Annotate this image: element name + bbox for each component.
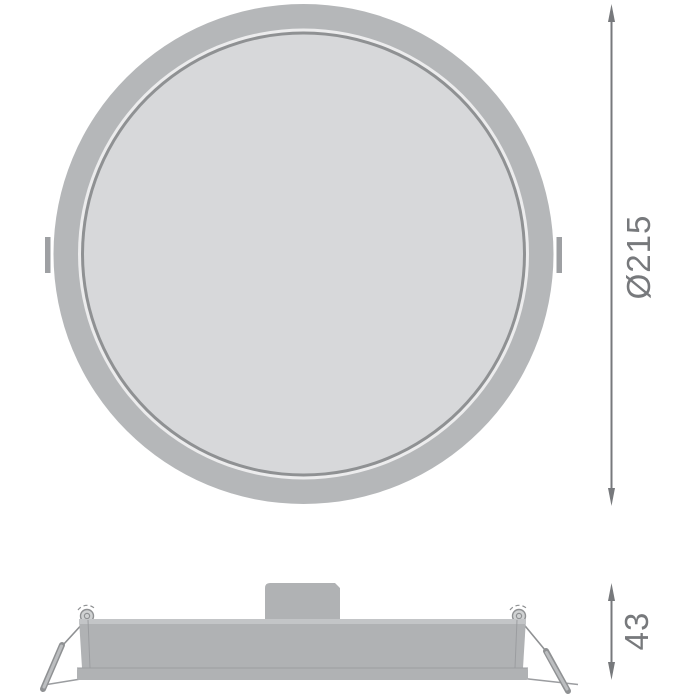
right-spring-rod-core <box>547 653 568 690</box>
height-dimension: 43 <box>608 583 655 680</box>
driver-box <box>265 583 340 622</box>
trim-body <box>79 619 526 668</box>
dimension-drawing: Ø215 <box>0 0 700 700</box>
diameter-dimension-label: Ø215 <box>620 215 657 300</box>
height-arrow-up-icon <box>608 583 615 601</box>
left-mounting-tab <box>45 237 51 273</box>
diameter-arrow-up-icon <box>608 4 615 22</box>
diameter-dimension: Ø215 <box>608 4 657 506</box>
height-arrow-down-icon <box>608 662 615 680</box>
trim-top-face <box>79 619 526 624</box>
top-view <box>45 4 562 504</box>
diameter-arrow-down-icon <box>608 488 615 506</box>
height-dimension-label: 43 <box>618 612 655 651</box>
drawing-canvas: Ø215 <box>0 0 700 700</box>
right-mounting-tab <box>557 237 563 273</box>
left-spring-rod-core <box>44 646 62 687</box>
bottom-flange <box>77 668 528 680</box>
diffuser-face <box>84 35 523 474</box>
side-view <box>43 583 578 691</box>
